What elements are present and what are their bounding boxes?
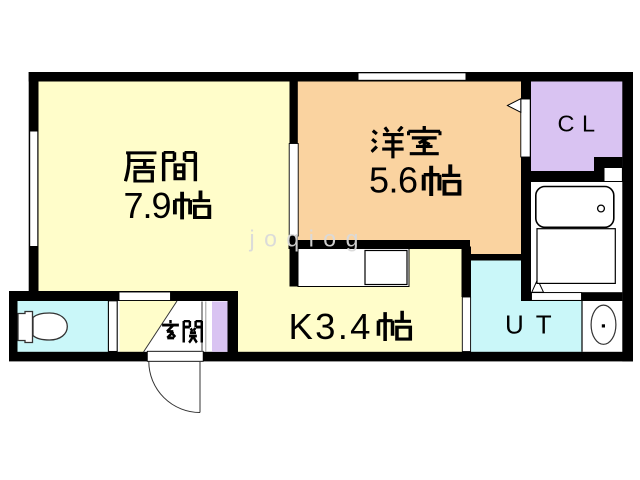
svg-text:UT: UT — [505, 310, 564, 340]
svg-text:joqiog: joqiog — [249, 226, 368, 252]
svg-text:K3.4: K3.4 — [289, 306, 373, 347]
svg-text:7.9: 7.9 — [124, 185, 171, 226]
svg-text:5.6: 5.6 — [369, 160, 418, 201]
svg-text:CL: CL — [558, 110, 603, 136]
